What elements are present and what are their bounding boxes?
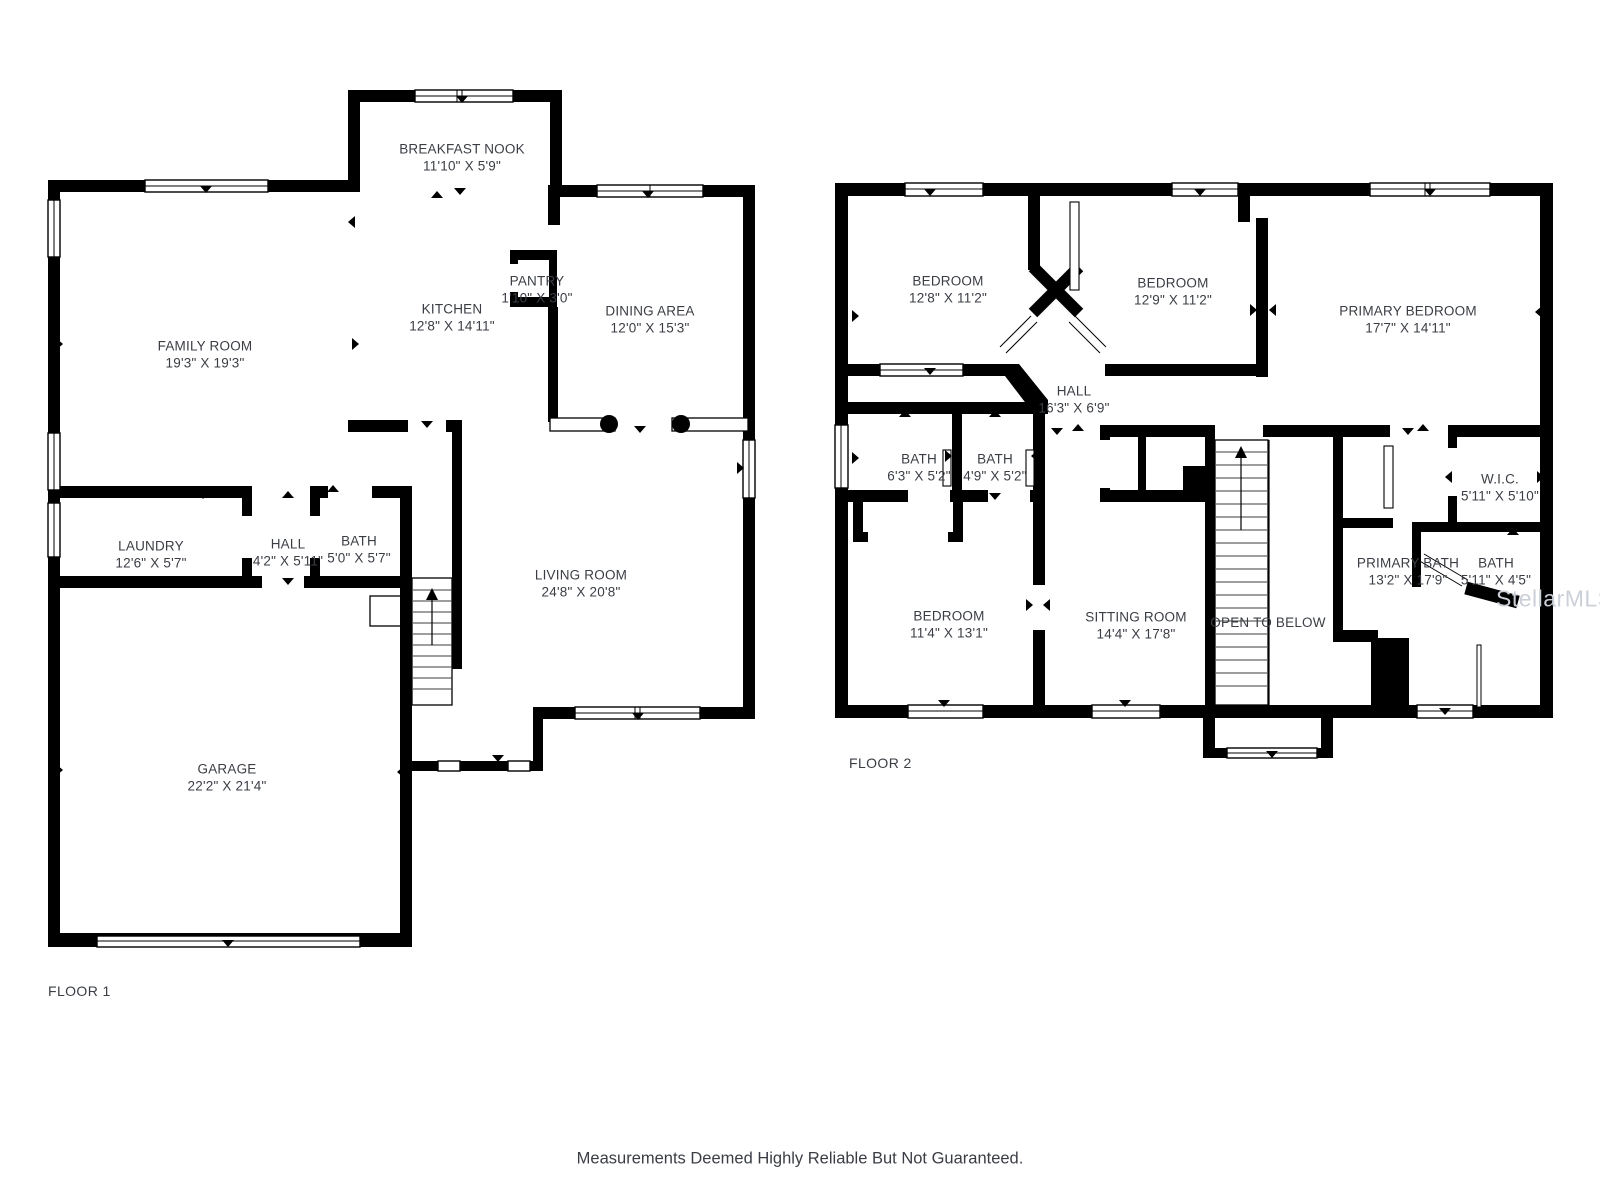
room-dims: 11'4" X 13'1" [910,625,988,642]
window [1092,705,1160,718]
room-name: DINING AREA [605,304,694,321]
room-dims: 24'8" X 20'8" [535,584,627,601]
room-name: PRIMARY BATH [1357,556,1459,573]
room-dims: 1'10" X 3'0" [501,290,572,307]
window [48,200,60,257]
room-name: BEDROOM [910,609,988,626]
floor2-stairs [1215,440,1269,705]
footer-disclaimer: Measurements Deemed Highly Reliable But … [577,1150,1024,1169]
room-label-living-room: LIVING ROOM24'8" X 20'8" [535,568,627,601]
room-label-pantry: PANTRY1'10" X 3'0" [501,274,572,307]
window [835,425,848,488]
floor1-stairs [412,578,452,705]
room-dims: 12'0" X 15'3" [605,320,694,337]
room-dims: 19'3" X 19'3" [158,355,253,372]
room-dims: 12'8" X 11'2" [909,290,987,307]
room-name: PRIMARY BEDROOM [1339,304,1477,321]
room-name: W.I.C. [1461,472,1539,489]
room-name: BATH [327,534,390,551]
floor2-label: FLOOR 2 [849,755,912,771]
room-name: HALL [253,537,323,554]
room-label-laundry: LAUNDRY12'6" X 5'7" [115,539,186,572]
room-dims: 5'0" X 5'7" [327,550,390,567]
room-label-hall: HALL16'3" X 6'9" [1038,384,1109,417]
room-dims: 16'3" X 6'9" [1038,400,1109,417]
room-label-bath: BATH6'3" X 5'2" [887,452,950,485]
room-dims: 22'2" X 21'4" [188,778,267,795]
room-name: BREAKFAST NOOK [399,142,525,159]
room-label-dining-area: DINING AREA12'0" X 15'3" [605,304,694,337]
room-label-kitchen: KITCHEN12'8" X 14'11" [409,302,495,335]
room-label-family-room: FAMILY ROOM19'3" X 19'3" [158,339,253,372]
room-dims: 14'4" X 17'8" [1085,626,1186,643]
room-label-bedroom: BEDROOM12'8" X 11'2" [909,274,987,307]
door-sidelight [508,761,530,771]
window [908,705,983,718]
cased-opening [880,364,963,376]
room-name: SITTING ROOM [1085,610,1186,627]
room-label-bath: BATH5'11" X 4'5" [1461,556,1531,589]
room-label-primary-bedroom: PRIMARY BEDROOM17'7" X 14'11" [1339,304,1477,337]
room-label-w-i-c-: W.I.C.5'11" X 5'10" [1461,472,1539,505]
room-name: HALL [1038,384,1109,401]
room-dims: 6'3" X 5'2" [887,468,950,485]
door-sidelight [438,761,460,771]
room-label-bedroom: BEDROOM11'4" X 13'1" [910,609,988,642]
window [48,433,60,490]
shower-glass-panel [1477,645,1481,707]
room-dims: 5'11" X 5'10" [1461,488,1539,505]
room-label-bath: BATH4'9" X 5'2" [963,452,1026,485]
room-label-open-to-below: OPEN TO BELOW [1210,615,1325,632]
stairs-up-arrow [426,588,438,645]
room-dims: 12'6" X 5'7" [115,555,186,572]
room-name: LIVING ROOM [535,568,627,585]
room-name: BATH [1461,556,1531,573]
room-dims: 12'8" X 14'11" [409,318,495,335]
room-label-bath: BATH5'0" X 5'7" [327,534,390,567]
stellar-mls-watermark: StellarMLS [1496,586,1600,613]
floor1-walls [48,90,755,947]
railing-column [672,415,690,433]
floorplan-canvas: BREAKFAST NOOK11'10" X 5'9"FAMILY ROOM19… [0,0,1600,1200]
room-name: OPEN TO BELOW [1210,615,1325,632]
room-name: GARAGE [188,762,267,779]
room-dims: 17'7" X 14'11" [1339,320,1477,337]
railing-column [600,415,618,433]
room-dims: 12'9" X 11'2" [1134,292,1212,309]
room-dims: 4'9" X 5'2" [963,468,1026,485]
room-name: LAUNDRY [115,539,186,556]
room-label-breakfast-nook: BREAKFAST NOOK11'10" X 5'9" [399,142,525,175]
room-dims: 11'10" X 5'9" [399,158,525,175]
floor1-plan [48,90,755,947]
room-label-sitting-room: SITTING ROOM14'4" X 17'8" [1085,610,1186,643]
room-name: BATH [963,452,1026,469]
dining-railing [550,415,748,433]
room-name: FAMILY ROOM [158,339,253,356]
room-name: BEDROOM [909,274,987,291]
room-name: BATH [887,452,950,469]
room-label-primary-bath: PRIMARY BATH13'2" X 17'9" [1357,556,1459,589]
window [905,183,983,196]
room-label-bedroom: BEDROOM12'9" X 11'2" [1134,276,1212,309]
floor1-label: FLOOR 1 [48,983,111,999]
window [48,503,60,557]
room-label-garage: GARAGE22'2" X 21'4" [188,762,267,795]
room-name: PANTRY [501,274,572,291]
room-name: BEDROOM [1134,276,1212,293]
room-dims: 13'2" X 17'9" [1357,572,1459,589]
floorplan-drawing [0,0,1600,1200]
room-label-hall: HALL4'2" X 5'11" [253,537,323,570]
room-dims: 4'2" X 5'11" [253,553,323,570]
room-dims: 5'11" X 4'5" [1461,572,1531,589]
window [743,440,755,498]
room-name: KITCHEN [409,302,495,319]
